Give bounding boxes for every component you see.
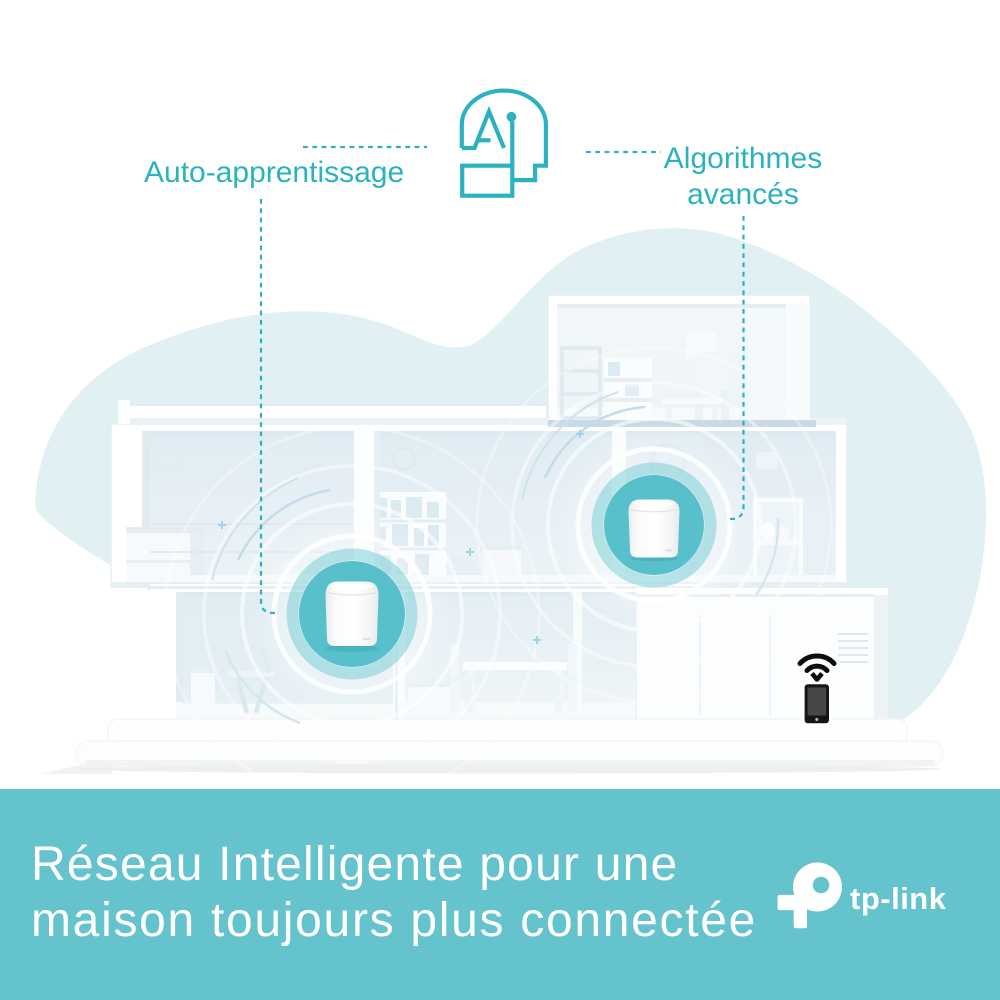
svg-text:tp-link: tp-link	[850, 881, 947, 916]
